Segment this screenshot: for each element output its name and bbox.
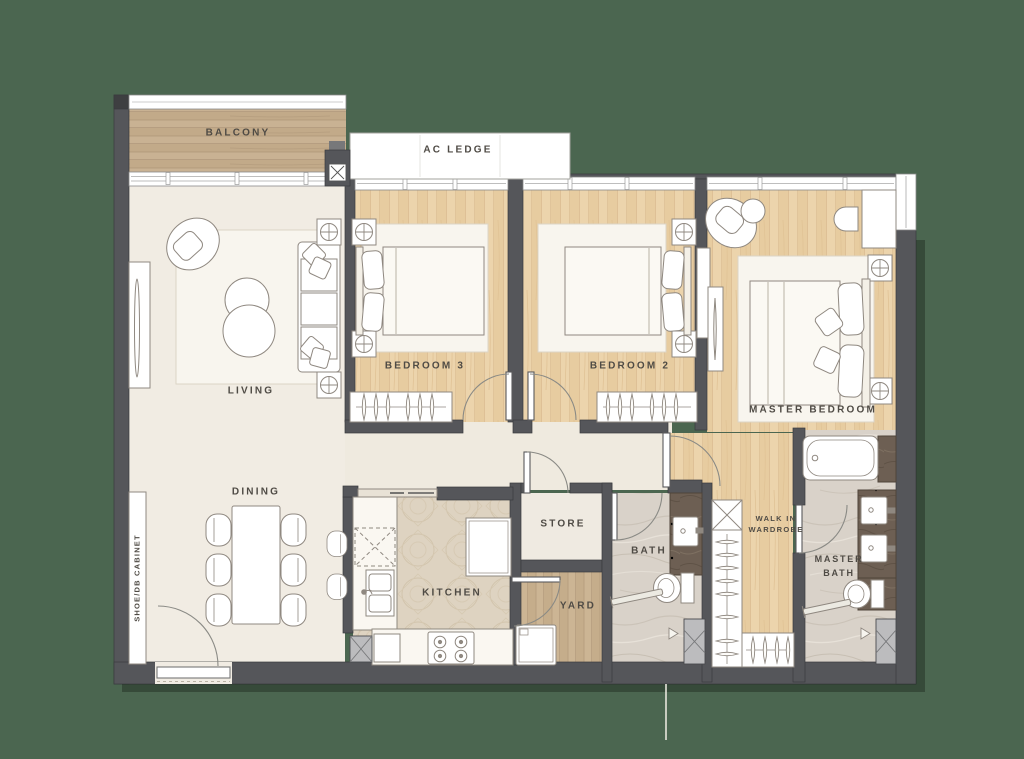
wall-left [114, 95, 129, 684]
room-label-master-bedroom: MASTER BEDROOM [749, 405, 877, 416]
pillow [361, 292, 384, 332]
bed [750, 281, 840, 405]
washer [516, 625, 556, 665]
wall-kitchen-top-left [343, 486, 358, 497]
bed-headboard [684, 247, 691, 335]
wardrobe-left [712, 500, 742, 667]
dining-table [232, 506, 280, 624]
dining-chair [281, 594, 306, 626]
duct-shaft [876, 619, 896, 664]
nightstand [352, 219, 376, 245]
wardrobe [350, 392, 452, 422]
wall-bedroom-bottom-2 [513, 420, 532, 433]
pillow [661, 292, 684, 332]
mirror-icon [714, 298, 717, 360]
yard-furniture [516, 625, 556, 665]
room-label-bedroom2: BEDROOM 2 [590, 361, 670, 372]
side-table [317, 372, 341, 398]
dining-stool [327, 574, 347, 600]
pillow [838, 344, 865, 397]
wall-kitchen-top [437, 487, 513, 500]
wall-cap-topleft [114, 95, 129, 109]
dining-stool [327, 531, 347, 557]
floor-balcony [129, 109, 346, 174]
wall-bath-left [602, 483, 612, 682]
dining-chair [281, 514, 306, 546]
coffee-table-small [223, 305, 275, 357]
wall-masterbath-left-2 [793, 553, 805, 682]
fridge [466, 518, 511, 576]
floor-plan-drawing [0, 0, 1024, 759]
wardrobe [597, 392, 697, 422]
faucet-icon [696, 528, 703, 533]
master-bath-line2: BATH [815, 566, 864, 580]
room-label-master-bath: MASTER BATH [815, 552, 864, 580]
dressing-stool [834, 207, 858, 231]
wardrobe-bottom [742, 633, 794, 667]
tub-deck [878, 436, 896, 482]
room-label-bedroom3: BEDROOM 3 [385, 361, 465, 372]
room-label-living: LIVING [228, 386, 275, 397]
dining-chair [206, 514, 231, 546]
sink [861, 535, 887, 562]
faucet-icon [888, 508, 895, 513]
pillow [361, 250, 384, 290]
duct-shaft [684, 619, 705, 664]
room-label-kitchen: KITCHEN [422, 588, 482, 599]
nightstand [868, 255, 892, 281]
master-bath-line1: MASTER [815, 552, 864, 566]
dining-chair [281, 554, 306, 586]
wall-living-bed3 [345, 179, 355, 422]
sink [861, 497, 887, 524]
walk-in-line1: WALK IN [749, 513, 804, 524]
wall-store-yard [521, 560, 602, 572]
toilet [654, 573, 695, 603]
room-label-dining: DINING [232, 487, 280, 498]
sofa [298, 242, 340, 372]
wall-right [896, 230, 916, 684]
floor-plan-canvas: BALCONY AC LEDGE BEDROOM 3 BEDROOM 2 MAS… [0, 0, 1024, 759]
room-label-bath: BATH [631, 546, 667, 557]
pillow [838, 282, 865, 335]
dining-chair [206, 554, 231, 586]
room-label-ac-ledge: AC LEDGE [423, 145, 492, 156]
side-table [317, 219, 341, 245]
bed-headboard [862, 279, 870, 407]
hob [428, 632, 474, 664]
room-label-walk-in: WALK IN WARDROBE [749, 513, 804, 535]
kitchen-sink [362, 570, 394, 616]
dining-chair [206, 594, 231, 626]
nightstand [672, 219, 696, 245]
column-step [329, 141, 345, 151]
label-shoe-cabinet: SHOE/DB CABINET [133, 534, 142, 622]
room-label-yard: YARD [560, 601, 596, 612]
nightstand [868, 378, 892, 404]
room-label-balcony: BALCONY [206, 128, 271, 139]
base-cabinet [374, 634, 400, 662]
duct-shaft [350, 636, 372, 662]
bed [383, 247, 484, 335]
room-label-store: STORE [540, 519, 585, 530]
pillow [661, 250, 684, 290]
wall-dining-kitchen [343, 497, 353, 633]
walk-in-line2: WARDROBE [749, 524, 804, 535]
wall-suite-jamb [668, 480, 702, 493]
bathtub [803, 436, 878, 480]
dressing-table [862, 190, 896, 248]
faucet-icon [888, 546, 895, 551]
bed [565, 247, 661, 335]
side-table-round [741, 199, 765, 223]
ac-ledge-area [350, 133, 570, 179]
